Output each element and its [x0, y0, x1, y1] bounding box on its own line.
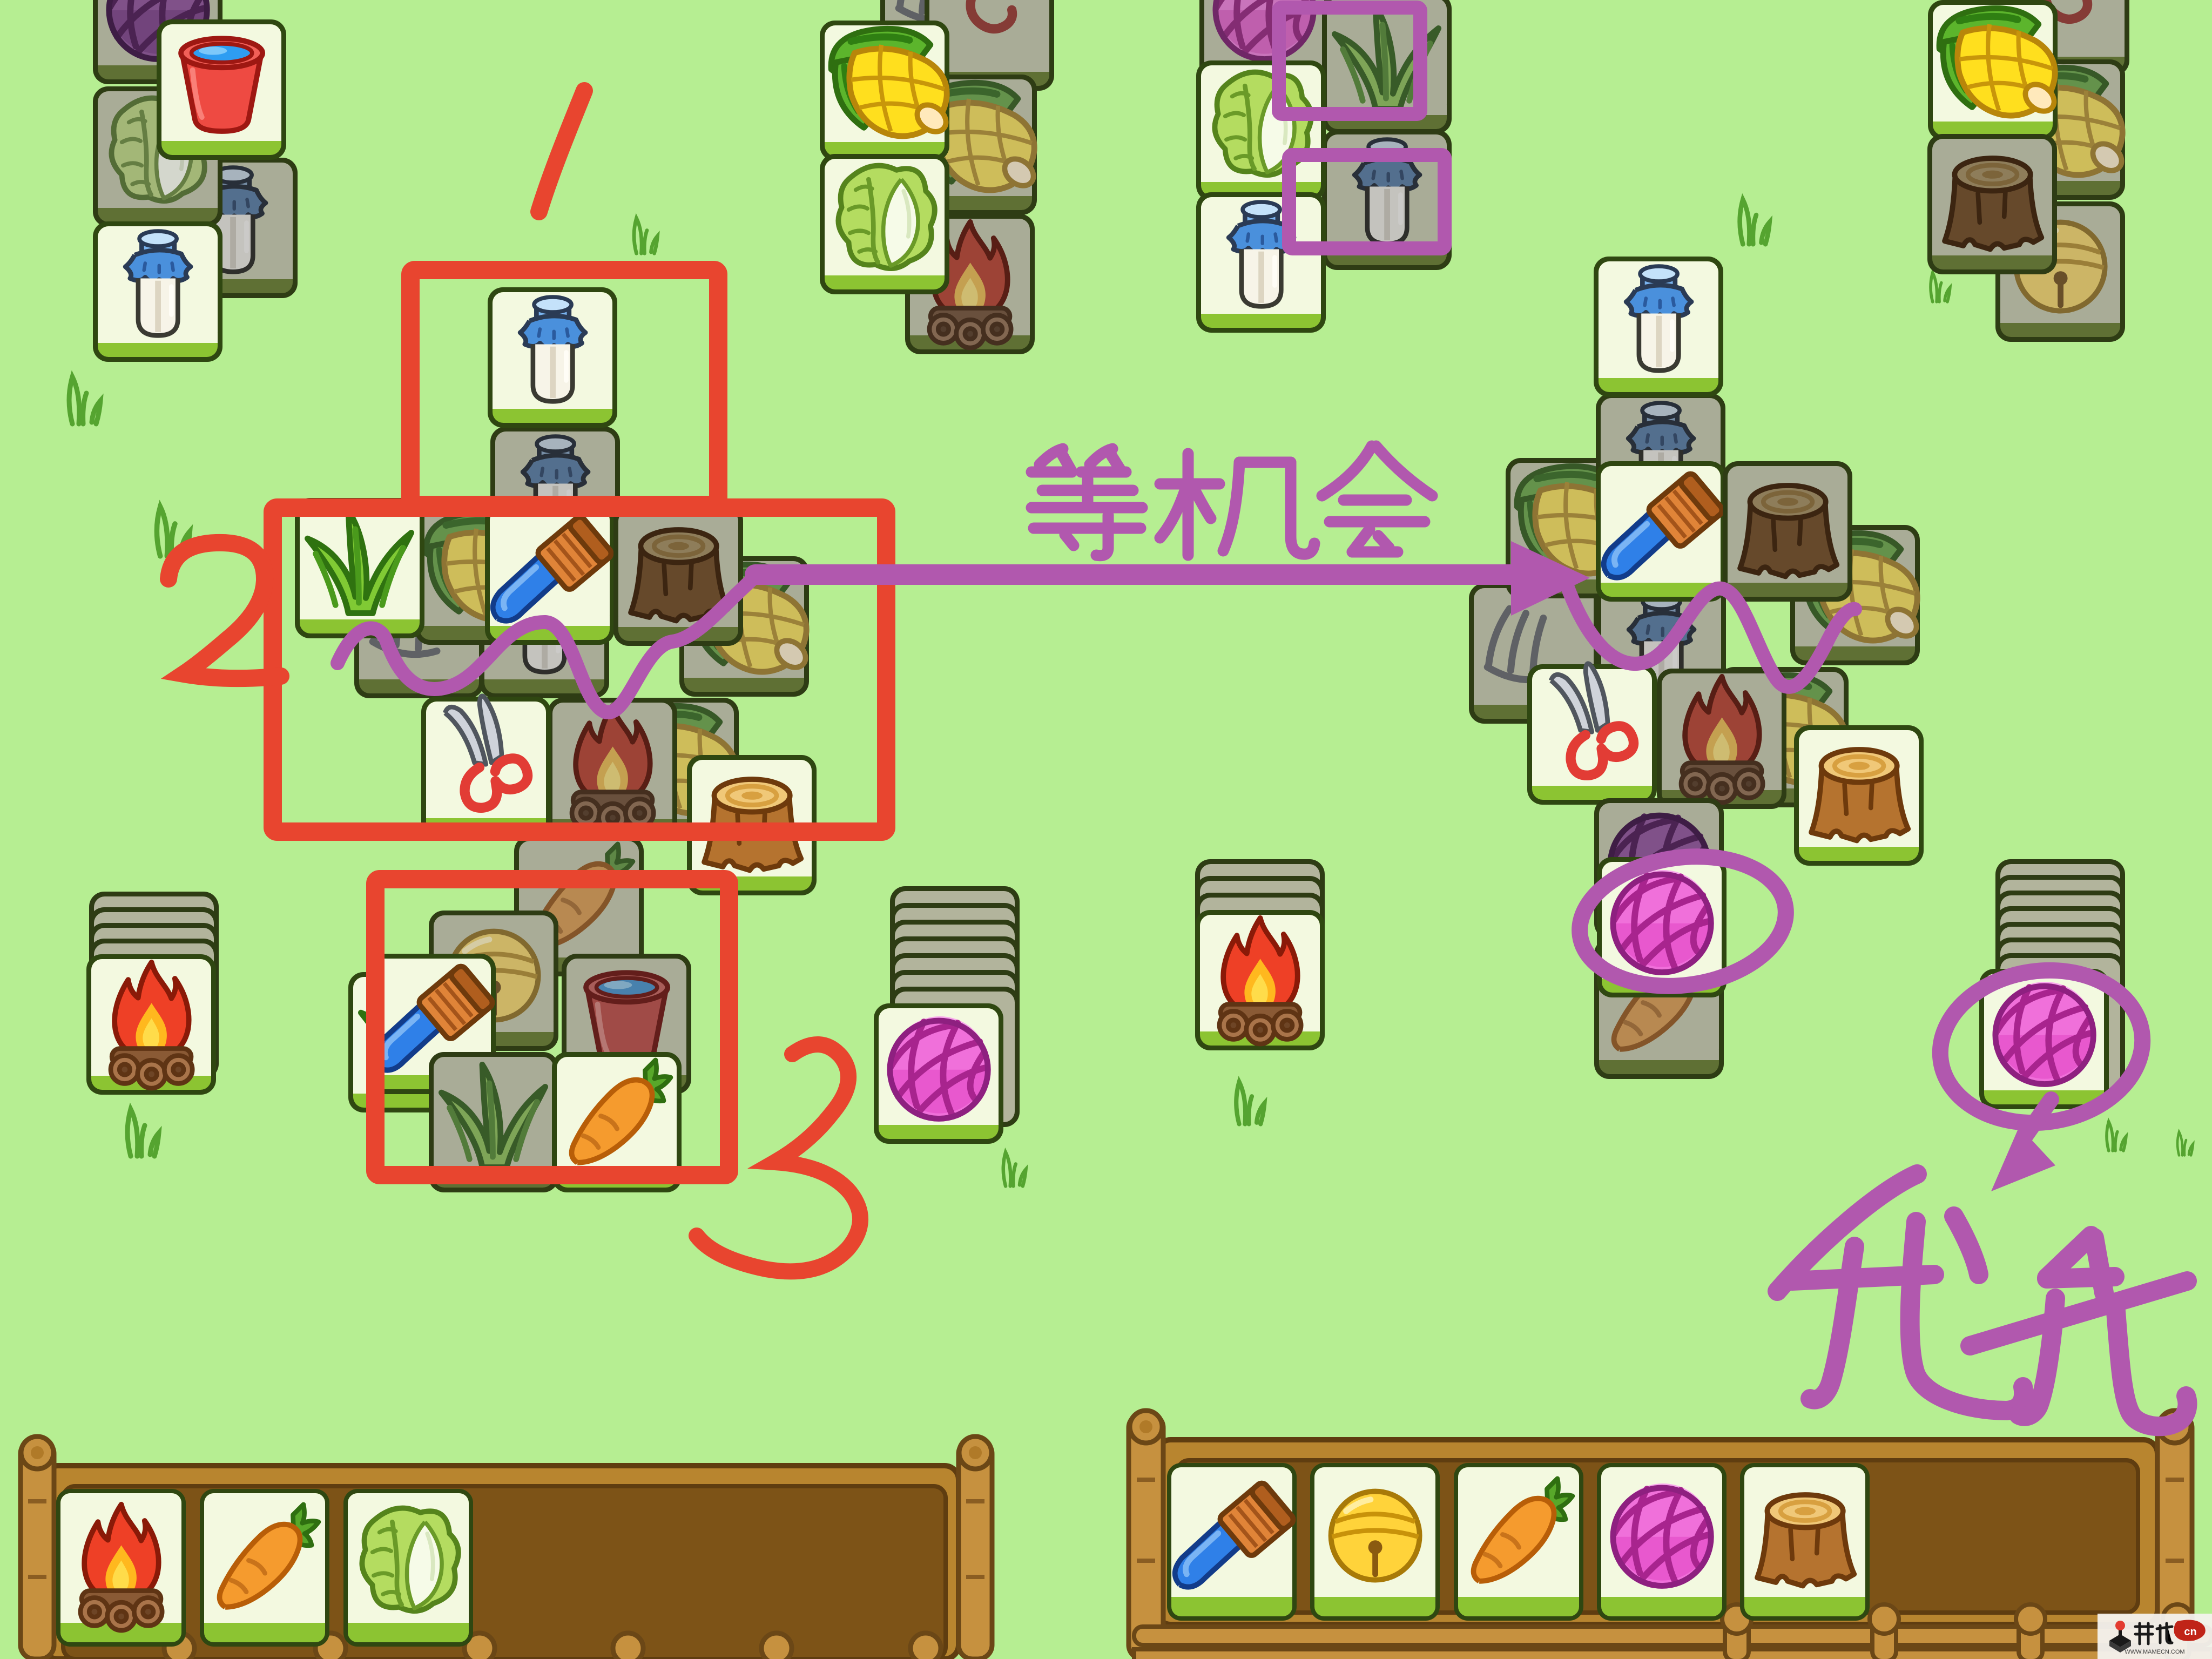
- svg-text:WWW.MAMECN.COM: WWW.MAMECN.COM: [2125, 1649, 2184, 1655]
- svg-text:cn: cn: [2184, 1626, 2196, 1638]
